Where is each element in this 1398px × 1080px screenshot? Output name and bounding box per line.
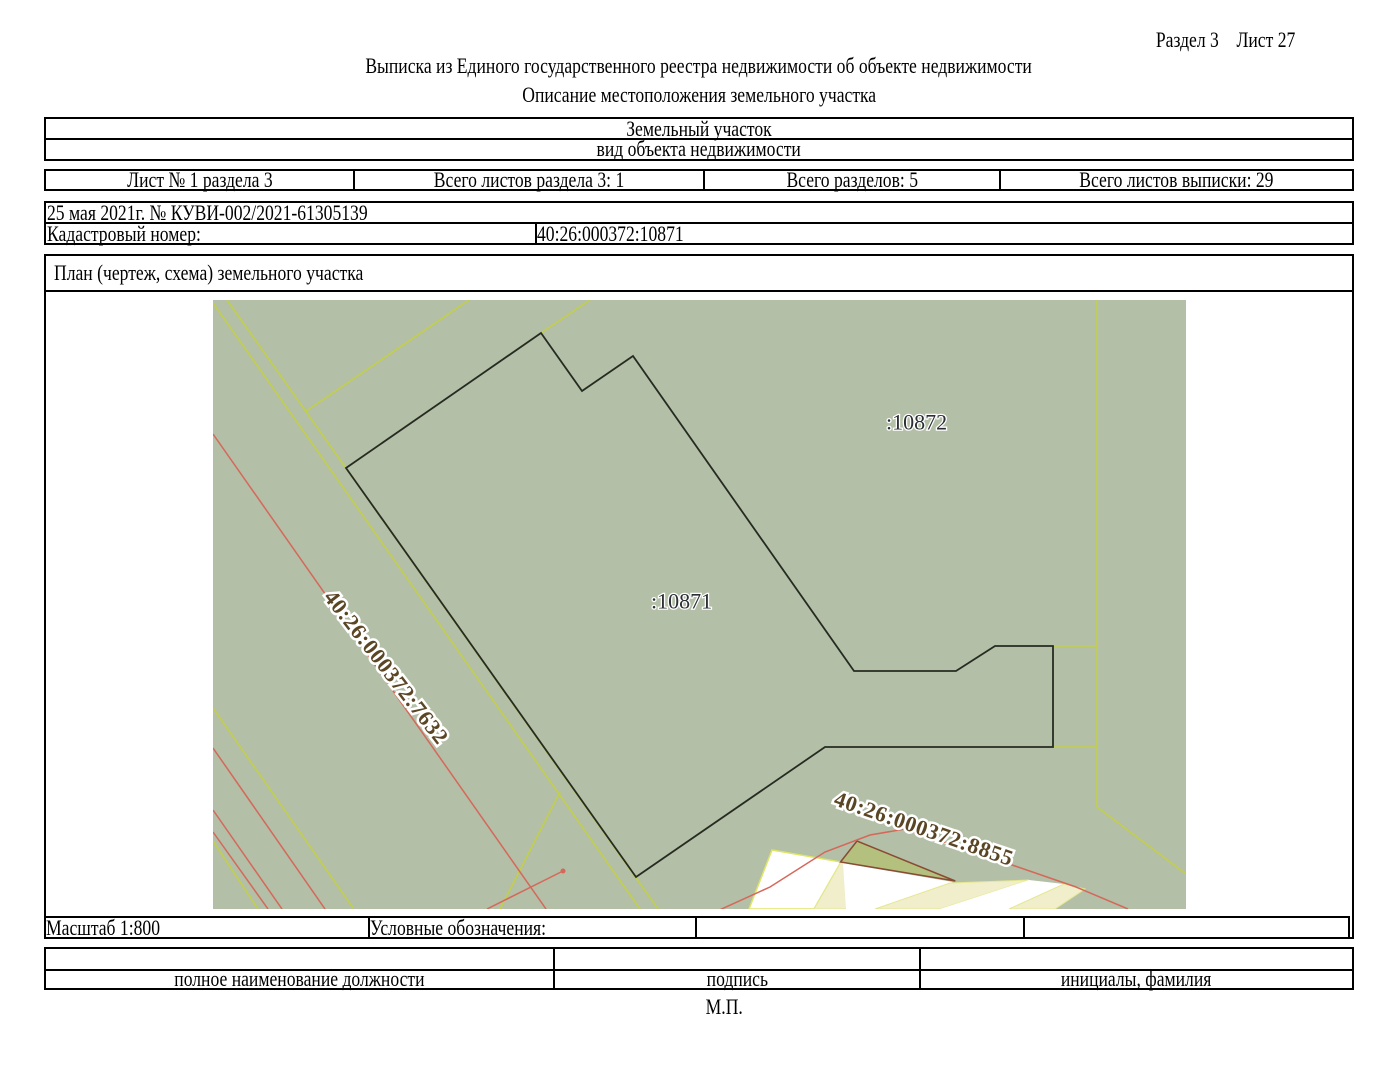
svg-text::10871: :10871: [651, 589, 712, 614]
svg-text::10872: :10872: [886, 410, 947, 435]
